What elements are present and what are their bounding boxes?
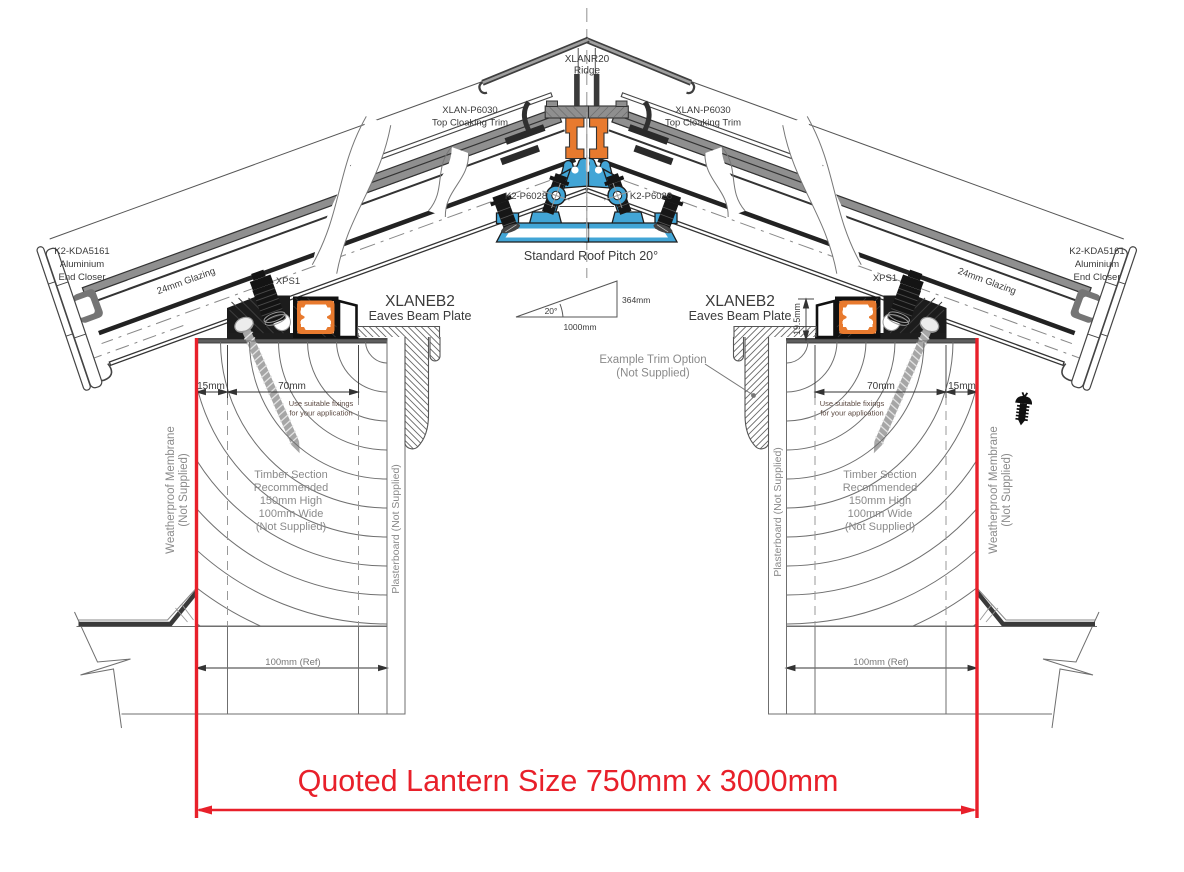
svg-text:End Closer: End Closer: [59, 272, 106, 283]
svg-text:XPS1: XPS1: [873, 273, 897, 284]
svg-text:XLAN-P6030: XLAN-P6030: [675, 105, 730, 116]
svg-text:Timber Section: Timber Section: [254, 469, 328, 481]
svg-text:Plasterboard (Not Supplied): Plasterboard (Not Supplied): [390, 464, 402, 594]
svg-text:100mm (Ref): 100mm (Ref): [265, 657, 320, 668]
svg-text:Aluminium: Aluminium: [1075, 259, 1119, 270]
svg-text:Ridge: Ridge: [574, 66, 601, 77]
svg-text:20°: 20°: [545, 306, 558, 316]
svg-text:for your application: for your application: [820, 409, 883, 418]
svg-text:K2-KDA5161: K2-KDA5161: [1069, 246, 1124, 257]
svg-text:1000mm: 1000mm: [563, 322, 596, 332]
svg-text:100mm (Ref): 100mm (Ref): [853, 657, 908, 668]
svg-text:for your application: for your application: [289, 409, 352, 418]
svg-text:364mm: 364mm: [622, 295, 650, 305]
svg-text:Top Cloaking Trim: Top Cloaking Trim: [665, 118, 741, 129]
svg-text:(Not Supplied): (Not Supplied): [1001, 453, 1013, 527]
svg-text:150mm High: 150mm High: [260, 495, 322, 507]
svg-text:(Not Supplied): (Not Supplied): [616, 368, 690, 380]
svg-text:XLANR20: XLANR20: [565, 54, 610, 65]
svg-text:Use suitable fixings: Use suitable fixings: [820, 399, 885, 408]
svg-text:K2-KDA5161: K2-KDA5161: [54, 246, 109, 257]
svg-text:XLANEB2: XLANEB2: [385, 293, 455, 310]
svg-text:XPS1: XPS1: [276, 276, 300, 287]
svg-text:Aluminium: Aluminium: [60, 259, 104, 270]
svg-text:(Not Supplied): (Not Supplied): [178, 453, 190, 527]
svg-text:Plasterboard (Not Supplied): Plasterboard (Not Supplied): [772, 447, 784, 577]
svg-text:Weatherproof Membrane: Weatherproof Membrane: [165, 426, 177, 554]
svg-text:15mm: 15mm: [948, 381, 976, 392]
svg-text:End Closer: End Closer: [1074, 272, 1121, 283]
svg-text:Example Trim Option: Example Trim Option: [599, 354, 706, 366]
svg-text:Standard Roof Pitch 20°: Standard Roof Pitch 20°: [524, 249, 658, 263]
svg-text:100mm Wide: 100mm Wide: [259, 508, 324, 520]
svg-text:15mm: 15mm: [197, 381, 225, 392]
svg-text:K2-P6028: K2-P6028: [630, 191, 672, 202]
svg-text:(Not Supplied): (Not Supplied): [845, 521, 915, 533]
svg-text:70mm: 70mm: [867, 381, 895, 392]
svg-text:70mm: 70mm: [278, 381, 306, 392]
svg-text:Timber Section: Timber Section: [843, 469, 917, 481]
svg-text:(Not Supplied): (Not Supplied): [256, 521, 326, 533]
svg-text:100mm Wide: 100mm Wide: [848, 508, 913, 520]
svg-text:XLANEB2: XLANEB2: [705, 293, 775, 310]
svg-text:Eaves Beam Plate: Eaves Beam Plate: [689, 309, 792, 323]
svg-text:19.5mm: 19.5mm: [792, 303, 802, 335]
svg-text:XLAN-P6030: XLAN-P6030: [442, 105, 497, 116]
svg-text:150mm High: 150mm High: [849, 495, 911, 507]
svg-text:Weatherproof Membrane: Weatherproof Membrane: [988, 426, 1000, 554]
svg-text:Top Cloaking Trim: Top Cloaking Trim: [432, 118, 508, 129]
svg-text:Use suitable fixings: Use suitable fixings: [289, 399, 354, 408]
svg-text:Eaves Beam Plate: Eaves Beam Plate: [369, 309, 472, 323]
svg-text:Recommended: Recommended: [254, 482, 329, 494]
svg-text:Quoted Lantern Size 750mm x 30: Quoted Lantern Size 750mm x 3000mm: [298, 764, 839, 798]
svg-text:Recommended: Recommended: [843, 482, 918, 494]
svg-text:K2-P6028: K2-P6028: [505, 191, 547, 202]
